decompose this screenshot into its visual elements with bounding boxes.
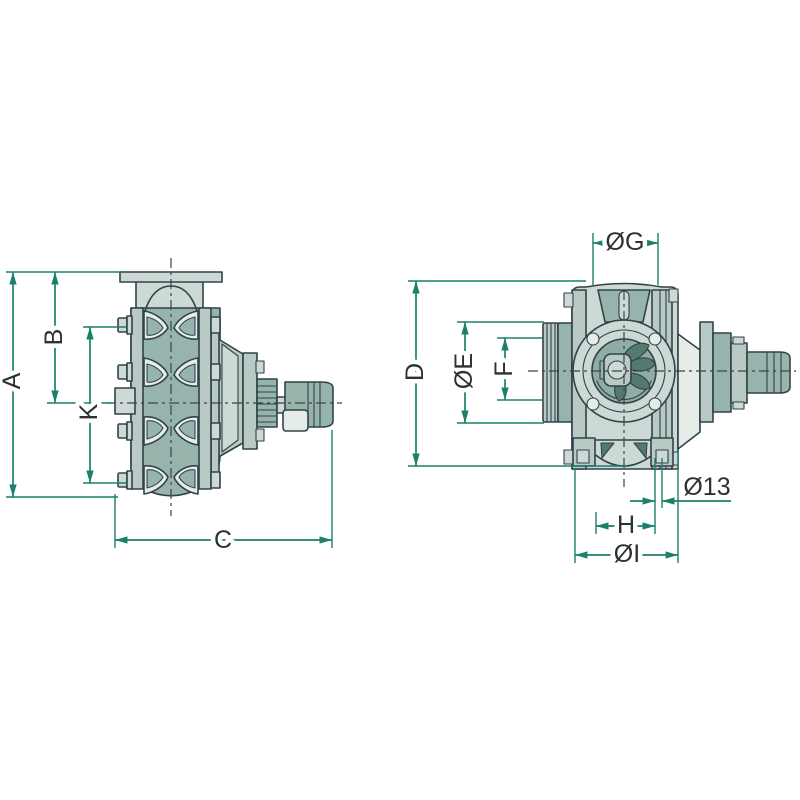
flange-bolt-hole-ne <box>649 333 661 345</box>
casing-cover-strip <box>211 318 219 480</box>
side-view <box>106 258 342 516</box>
dimension-B: B <box>40 272 112 403</box>
dimension-13-label: Ø13 <box>683 473 730 501</box>
drain-plug <box>283 410 308 431</box>
dimension-K-label: K <box>75 403 103 420</box>
dimension-C-label: C <box>214 526 232 554</box>
gearbox-cone <box>678 334 700 449</box>
gear-step-2 <box>731 343 747 403</box>
dimension-F-label: F <box>490 361 518 376</box>
hose-coupling <box>543 323 575 422</box>
bearing-flange <box>243 353 257 449</box>
dimension-H: H <box>596 511 655 539</box>
dimension-H-label: H <box>617 511 635 539</box>
pto-shaft-stub <box>747 352 790 393</box>
gear-tab-top <box>733 337 744 344</box>
dimension-G-label: ØG <box>606 228 645 256</box>
dimension-D-label: D <box>401 363 429 381</box>
bolt-hole-bottom-left <box>577 450 589 463</box>
dimension-G: ØG <box>593 228 658 285</box>
drawing-svg: A B K C D ØE F ØG Ø13 <box>0 0 800 800</box>
dimension-A: A <box>0 272 122 497</box>
dimension-A-label: A <box>0 372 26 389</box>
gear-step-1 <box>713 333 731 412</box>
dimension-I-label: ØI <box>614 540 640 568</box>
hub-bore <box>608 361 626 379</box>
flange-bolt-bottom <box>256 429 264 441</box>
gearbox-flange <box>700 322 713 422</box>
dimension-B-label: B <box>40 329 68 346</box>
right-bolt-column <box>199 308 211 489</box>
flange-bolt-hole-nw <box>587 333 599 345</box>
dimension-F: F <box>490 338 543 400</box>
pump-dimension-drawing: A B K C D ØE F ØG Ø13 <box>0 0 800 800</box>
dimension-E-label: ØE <box>450 353 478 389</box>
gear-tab-bottom <box>733 402 744 409</box>
bell-facet <box>222 344 238 452</box>
side-port-boss <box>115 388 135 414</box>
flange-bolt-top <box>256 361 264 373</box>
flange-bolt-hole-se <box>649 398 661 410</box>
front-view <box>528 284 796 488</box>
flange-bolt-hole-sw <box>587 398 599 410</box>
